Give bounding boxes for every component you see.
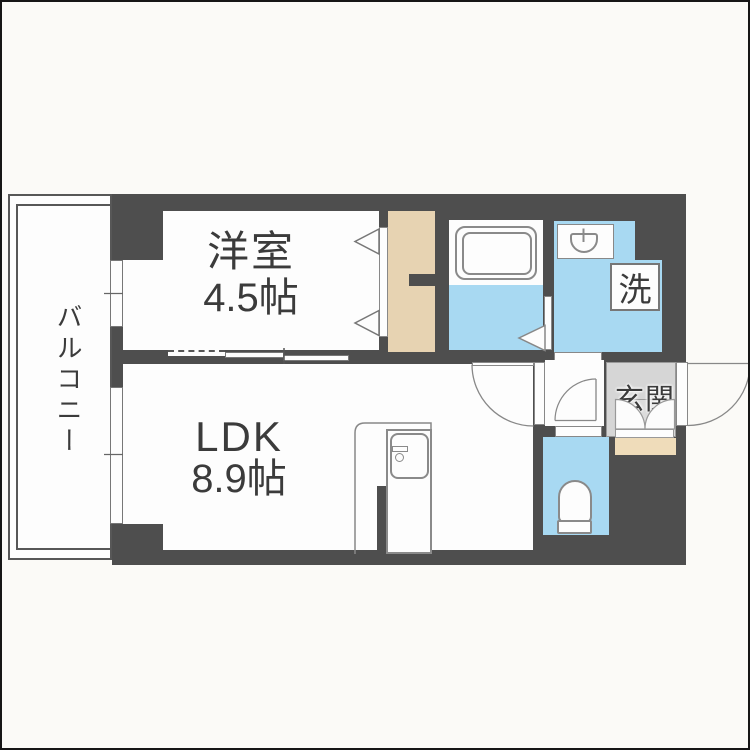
kitchen-drainer-icon [392,446,408,452]
bedroom-label: 洋室 [151,231,351,273]
bathroom-floor [449,285,543,350]
ldk-window [110,387,123,524]
washing-machine-label: 洗 [619,263,652,311]
bathtub-inner-icon [462,232,532,275]
ldk-label: LDK [139,416,339,458]
kitchen-faucet-icon [395,453,404,462]
sliding-door-panel [283,355,349,361]
ldk-door-leaf [472,362,534,366]
toilet-icon [558,480,592,523]
bedroom-window [110,260,123,327]
bathroom-door-frame [544,296,552,350]
entrance-label: 玄関 [601,376,689,418]
kitchen-partition-wall [377,486,386,554]
front-door-swing-arc [688,364,750,426]
bedroom-size-label: 4.5帖 [151,278,351,318]
shoe-cabinet [615,438,676,455]
entrance-step [615,429,674,438]
sliding-door-panel [225,352,284,358]
hallway-door-frame [534,362,545,425]
folding-door-track [379,227,388,337]
ldk-size-label: 8.9帖 [139,459,339,499]
balcony-label: バルコニー [49,303,87,458]
toilet-door-threshold [555,426,602,437]
toilet-tank-icon [557,520,592,534]
floor-plan-canvas: バルコニー 洗 玄関 [0,0,750,750]
closet-divider-wall [409,274,435,286]
washing-machine-slot: 洗 [610,263,660,311]
wall-opening-dashed [168,350,225,356]
hallway-floor [545,360,604,426]
wall-corner-bottom-left [112,524,163,550]
